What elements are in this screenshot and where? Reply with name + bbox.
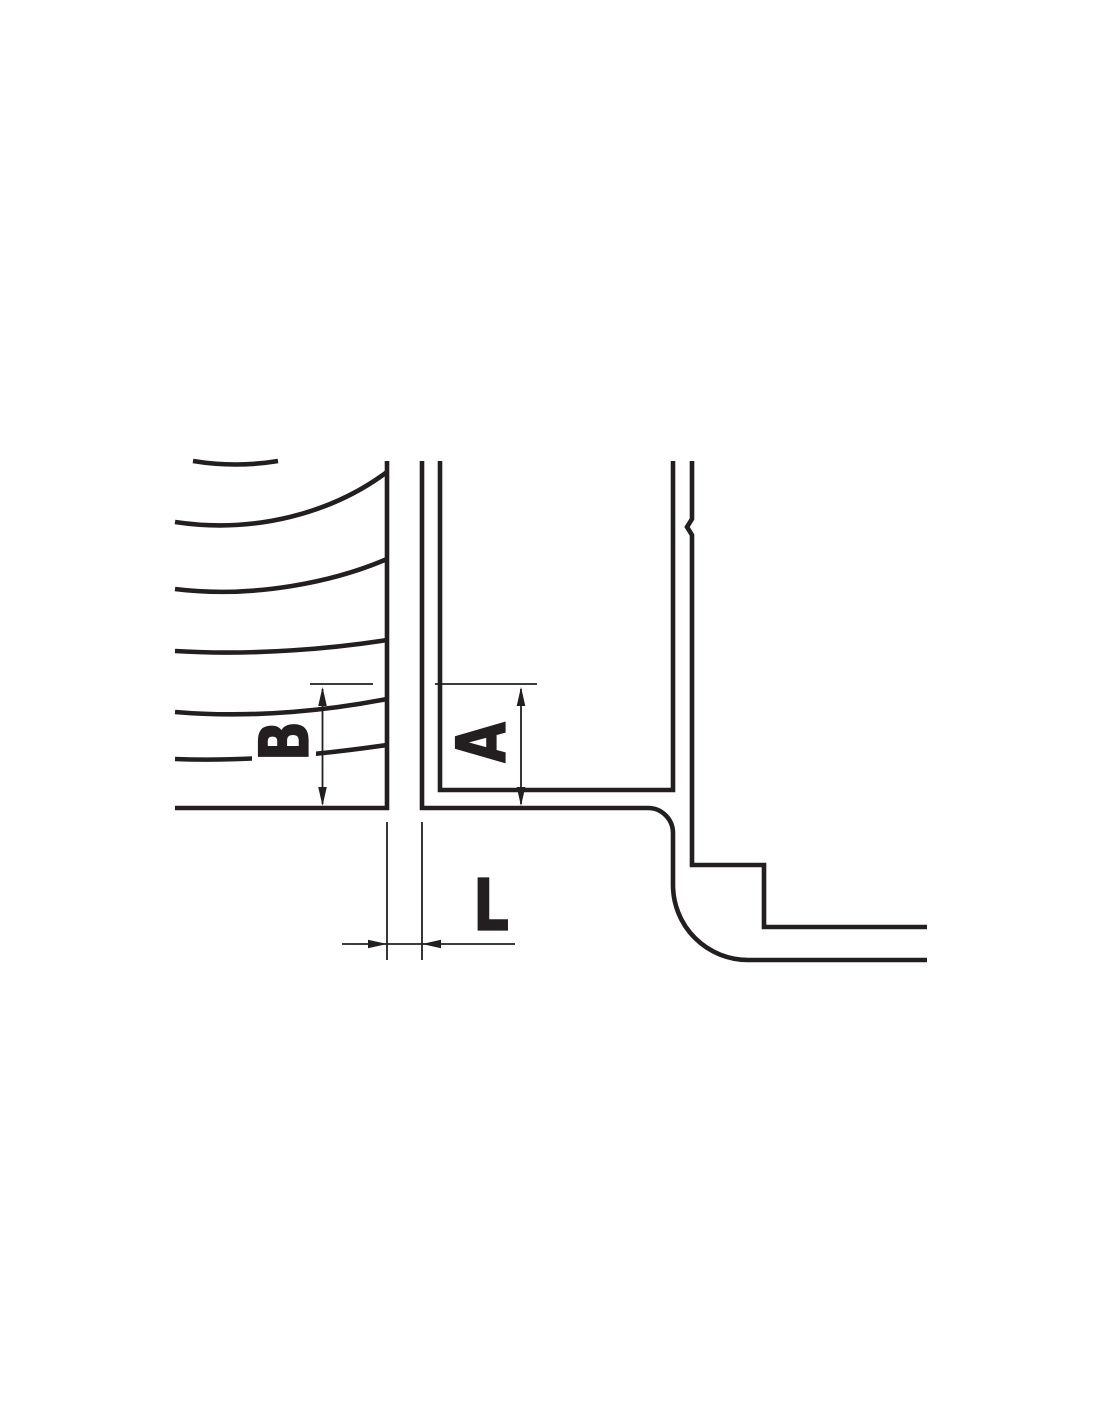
casing-right-wall-step [687, 461, 927, 927]
dimension-l-arrow-left [368, 940, 387, 949]
vane-curve-4 [175, 640, 387, 653]
dimension-a-arrow-down [517, 787, 526, 806]
dimension-l-arrow-right [422, 940, 441, 949]
dimension-a-arrow-up [517, 687, 526, 706]
vane-curve-3 [175, 559, 387, 592]
vane-curve-1 [193, 461, 278, 465]
technical-diagram: B A L [0, 0, 1100, 1422]
dimension-b-arrow-down [318, 787, 327, 806]
vane-curve-2 [175, 472, 387, 525]
vane-curve-5 [175, 699, 387, 714]
dimension-l: L [342, 822, 515, 960]
dimension-b: B [246, 684, 373, 806]
drawing-canvas: B A L [0, 0, 1100, 1422]
dimension-b-label: B [246, 721, 325, 761]
dimension-l-label: L [473, 865, 509, 948]
dimension-a-label: A [443, 722, 522, 763]
dimension-b-arrow-up [318, 687, 327, 706]
